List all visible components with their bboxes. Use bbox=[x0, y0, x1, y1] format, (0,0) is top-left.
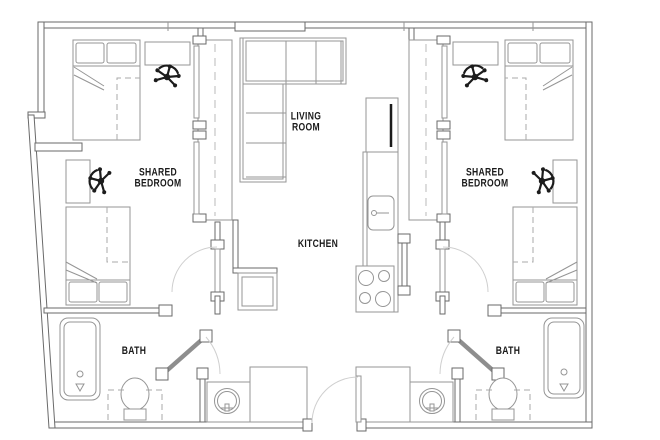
floor-plan-drawing bbox=[0, 0, 660, 440]
wall-stub bbox=[409, 28, 414, 40]
right-bedroom-label-line2: BEDROOM bbox=[462, 178, 509, 189]
closet-door-panel bbox=[194, 142, 199, 214]
door-jamb bbox=[303, 419, 312, 431]
bath-wall bbox=[455, 376, 460, 422]
cabinet-icon bbox=[238, 273, 277, 310]
left-closet bbox=[193, 28, 232, 222]
left-bedroom-door bbox=[172, 222, 224, 314]
door-jamb bbox=[193, 214, 206, 222]
toilet-icon bbox=[476, 378, 530, 420]
living-room-label-line2: ROOM bbox=[291, 122, 321, 133]
toilet-icon bbox=[108, 378, 162, 420]
door-jamb bbox=[488, 305, 501, 316]
kitchen-label: KITCHEN bbox=[298, 239, 338, 250]
desk-icon bbox=[66, 160, 90, 203]
pillow-icon bbox=[107, 43, 136, 63]
door-jamb bbox=[197, 368, 208, 379]
pillow-icon bbox=[540, 43, 570, 63]
left-bedroom-label-line2: BEDROOM bbox=[135, 178, 182, 189]
bath-wall bbox=[200, 376, 205, 422]
stove-icon bbox=[356, 266, 394, 312]
pillow-icon bbox=[69, 282, 97, 302]
refrigerator-icon bbox=[366, 98, 398, 152]
door-jamb bbox=[437, 131, 450, 139]
desk-icon bbox=[453, 42, 498, 65]
living-room-label-line1: LIVING bbox=[291, 112, 321, 123]
right-bedroom-door bbox=[436, 222, 488, 314]
bed-icon bbox=[66, 207, 130, 305]
right-bath bbox=[440, 305, 586, 422]
floor-plan: LIVING ROOM KITCHEN SHARED BEDROOM SHARE… bbox=[0, 0, 660, 440]
bottom-wall-left bbox=[50, 422, 310, 428]
left-bath-label-text: BATH bbox=[122, 346, 146, 357]
kitchen-label-text: KITCHEN bbox=[298, 239, 338, 250]
closet-door-panel bbox=[194, 46, 199, 118]
right-closet bbox=[409, 28, 450, 222]
closet-door-panel bbox=[442, 46, 447, 118]
utility-closet bbox=[250, 367, 307, 422]
left-bedroom-label-line1: SHARED bbox=[135, 168, 182, 179]
kitchen-wall bbox=[233, 220, 238, 272]
right-wall bbox=[586, 22, 592, 428]
right-bath-label-text: BATH bbox=[496, 346, 520, 357]
door-jamb bbox=[193, 36, 206, 44]
pillow-icon bbox=[508, 43, 537, 63]
door-jamb bbox=[193, 131, 206, 139]
door-jamb bbox=[193, 121, 206, 129]
left-wall-angled bbox=[28, 115, 55, 428]
utility-closet bbox=[356, 367, 410, 422]
left-wall-upper bbox=[38, 22, 44, 117]
pillow-icon bbox=[99, 282, 127, 302]
kitchen-sink-icon bbox=[368, 196, 394, 230]
vanity-sink-icon bbox=[215, 389, 240, 414]
bottom-wall-right bbox=[358, 422, 592, 428]
vanity-right bbox=[356, 367, 453, 422]
bath-wall bbox=[44, 308, 167, 313]
door-swing-icon bbox=[440, 249, 445, 292]
door-swing-arc bbox=[443, 247, 488, 292]
top-wall-chase bbox=[235, 22, 305, 31]
top-wall bbox=[38, 22, 592, 28]
desk-icon bbox=[145, 42, 190, 65]
bath-wall bbox=[493, 308, 586, 313]
pillow-icon bbox=[516, 282, 544, 302]
door-jamb bbox=[159, 305, 172, 316]
pillow-icon bbox=[76, 43, 104, 63]
closet-door-panel bbox=[442, 142, 447, 214]
door-jamb bbox=[437, 121, 450, 129]
door-jamb bbox=[398, 234, 410, 243]
kitchen-wall bbox=[233, 268, 277, 273]
door-jamb bbox=[200, 330, 212, 342]
bed-icon bbox=[73, 40, 140, 140]
door-swing-icon bbox=[356, 376, 361, 422]
door-jamb bbox=[437, 36, 450, 44]
door-jamb bbox=[437, 214, 450, 222]
door-jamb bbox=[452, 368, 463, 379]
pillow-icon bbox=[546, 282, 574, 302]
bathtub-icon bbox=[60, 318, 100, 400]
right-bath-label: BATH bbox=[496, 346, 520, 357]
wall-ledge bbox=[35, 143, 82, 151]
door-swing-arc bbox=[172, 247, 217, 292]
right-bedroom-label: SHARED BEDROOM bbox=[462, 168, 509, 189]
bed-icon bbox=[505, 40, 573, 140]
left-bedroom-label: SHARED BEDROOM bbox=[135, 168, 182, 189]
left-bath bbox=[44, 305, 220, 422]
door-swing-arc bbox=[312, 377, 358, 423]
door-swing-icon bbox=[215, 249, 220, 292]
wall-stub bbox=[440, 296, 445, 314]
door-jamb bbox=[448, 330, 460, 342]
kitchen-wall bbox=[402, 240, 407, 288]
vanity-left bbox=[207, 367, 307, 422]
desk-icon bbox=[553, 160, 577, 203]
bed-icon bbox=[513, 207, 577, 305]
door-jamb bbox=[156, 368, 168, 380]
living-room-label: LIVING ROOM bbox=[291, 112, 321, 133]
entry-door bbox=[303, 376, 366, 431]
left-bath-label: BATH bbox=[122, 346, 146, 357]
door-jamb bbox=[398, 286, 410, 295]
bathtub-icon bbox=[544, 318, 584, 398]
wall-stub bbox=[215, 296, 220, 314]
vanity-sink-icon bbox=[420, 389, 445, 414]
right-bedroom-label-line1: SHARED bbox=[462, 168, 509, 179]
